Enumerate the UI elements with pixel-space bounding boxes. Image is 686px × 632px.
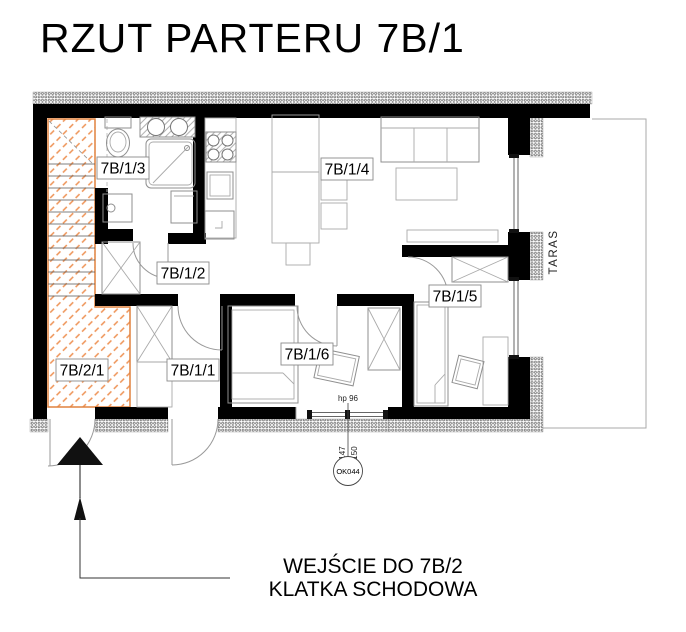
oven-icon <box>207 172 233 199</box>
entrance-note-line1: WEJŚCIE DO 7B/2 <box>283 554 463 578</box>
svg-text:7B/2/1: 7B/2/1 <box>60 363 105 380</box>
bedroom5-furniture <box>414 257 508 406</box>
window-mark-label: OK044 <box>336 467 359 476</box>
kitchen-island-icon <box>272 115 319 243</box>
room-label-7b-1-4: 7B/1/4 <box>321 158 373 180</box>
floor-plan-page: RZUT PARTERU 7B/1 TARAS <box>0 0 686 632</box>
room-label-7b-1-6: 7B/1/6 <box>281 343 333 365</box>
leader-line <box>80 518 230 578</box>
kitchen-fixtures <box>205 118 236 239</box>
bed-icon <box>414 302 448 406</box>
svg-text:7B/1/6: 7B/1/6 <box>285 347 330 364</box>
coffee-table-icon <box>396 168 457 200</box>
sofa-icon <box>381 117 479 162</box>
chair-icon <box>452 355 484 388</box>
svg-text:7B/1/2: 7B/1/2 <box>161 266 206 283</box>
svg-text:7B/1/4: 7B/1/4 <box>325 162 370 179</box>
room-label-7b-1-2: 7B/1/2 <box>157 262 209 284</box>
room-label-7b-2-1: 7B/2/1 <box>56 359 108 381</box>
terrace-label: TARAS <box>548 230 560 275</box>
svg-text:7B/1/3: 7B/1/3 <box>101 161 146 178</box>
chair-icon <box>286 243 310 265</box>
entrance-note-line2: KLATKA SCHODOWA <box>269 578 478 601</box>
desk-icon <box>483 337 508 405</box>
sideboard-icon <box>407 230 498 242</box>
sill-height-label: hp 96 <box>338 394 359 403</box>
toilet-icon <box>105 117 131 128</box>
living-room-furniture <box>272 115 498 265</box>
room-label-7b-1-3: 7B/1/3 <box>97 157 149 179</box>
fridge-icon <box>205 211 234 239</box>
page-title: RZUT PARTERU 7B/1 <box>40 15 465 61</box>
entrance-arrow-icon <box>57 437 103 465</box>
floor-plan-canvas: RZUT PARTERU 7B/1 TARAS <box>0 0 686 632</box>
window-annotation: hp 96 147 150 OK044 <box>333 392 363 486</box>
room-label-7b-1-5: 7B/1/5 <box>429 285 481 307</box>
leader-arrow-icon <box>74 497 86 520</box>
shower-icon <box>146 139 195 188</box>
entrance-annotation: WEJŚCIE DO 7B/2 KLATKA SCHODOWA <box>57 437 477 601</box>
svg-text:7B/1/5: 7B/1/5 <box>433 289 478 306</box>
terrace-outline: TARAS <box>535 119 646 428</box>
chair-icon <box>321 203 347 229</box>
svg-text:7B/1/1: 7B/1/1 <box>171 363 216 380</box>
room-label-7b-1-1: 7B/1/1 <box>167 359 219 381</box>
